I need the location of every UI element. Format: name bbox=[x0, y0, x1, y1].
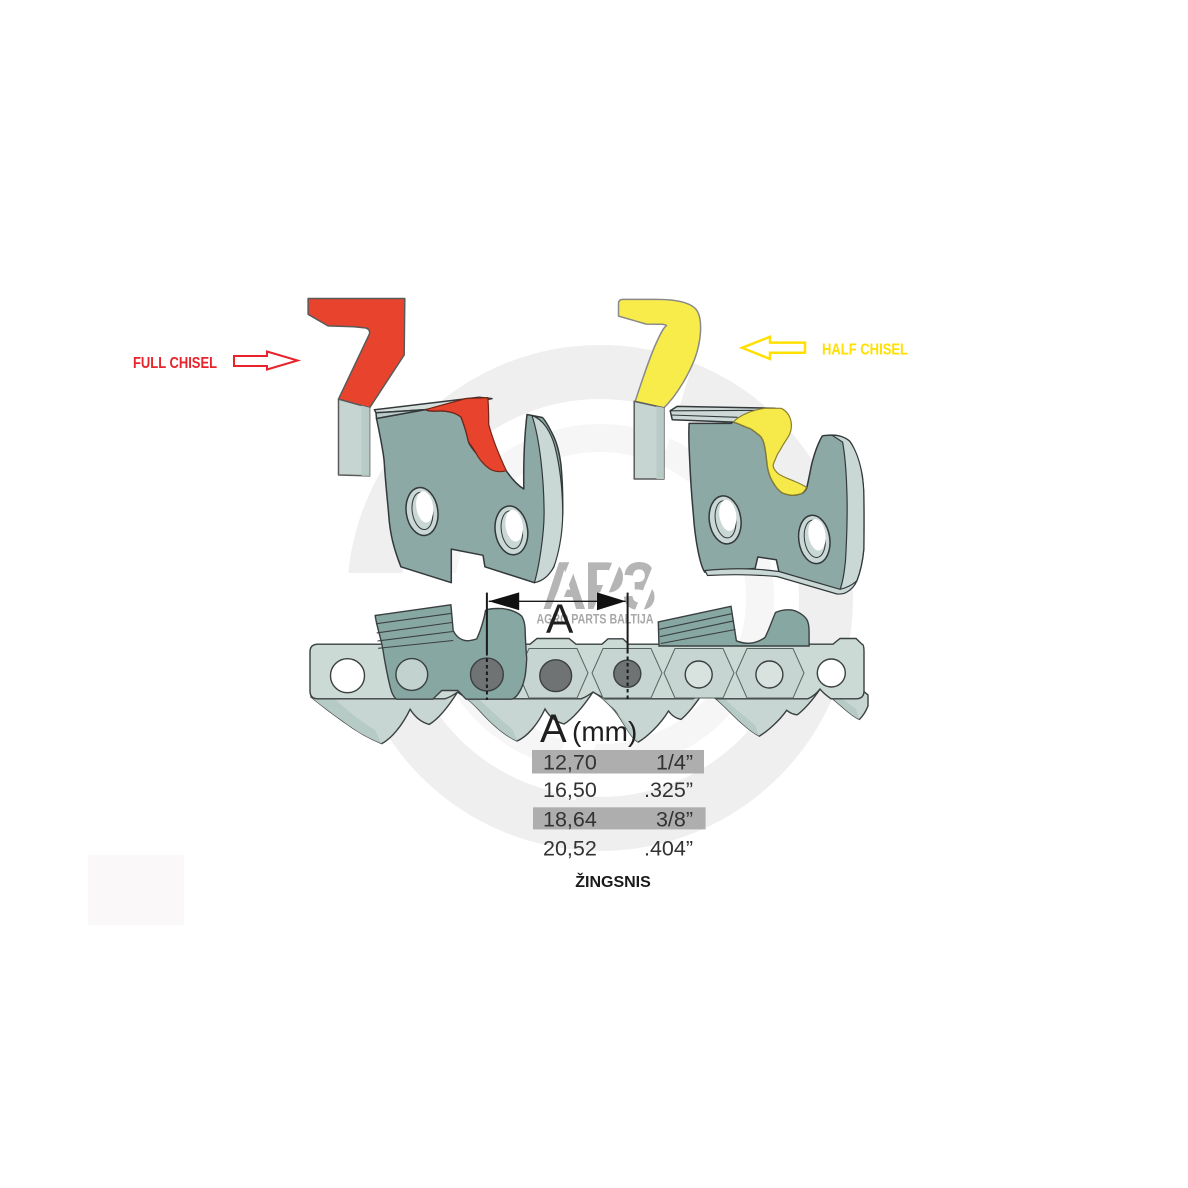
svg-text:18,64: 18,64 bbox=[543, 807, 597, 831]
svg-text:(mm): (mm) bbox=[572, 716, 637, 747]
svg-text:FULL CHISEL: FULL CHISEL bbox=[133, 355, 217, 372]
svg-text:A: A bbox=[546, 596, 574, 642]
svg-text:20,52: 20,52 bbox=[543, 837, 597, 861]
svg-text:A: A bbox=[540, 707, 567, 751]
svg-text:16,50: 16,50 bbox=[543, 778, 597, 802]
svg-text:HALF CHISEL: HALF CHISEL bbox=[822, 342, 908, 359]
svg-text:3/8”: 3/8” bbox=[656, 807, 693, 831]
svg-text:.325”: .325” bbox=[644, 778, 693, 802]
svg-text:.404”: .404” bbox=[644, 837, 693, 861]
svg-text:1/4”: 1/4” bbox=[656, 750, 693, 774]
svg-text:12,70: 12,70 bbox=[543, 750, 597, 774]
svg-text:ŽINGSNIS: ŽINGSNIS bbox=[575, 872, 651, 891]
